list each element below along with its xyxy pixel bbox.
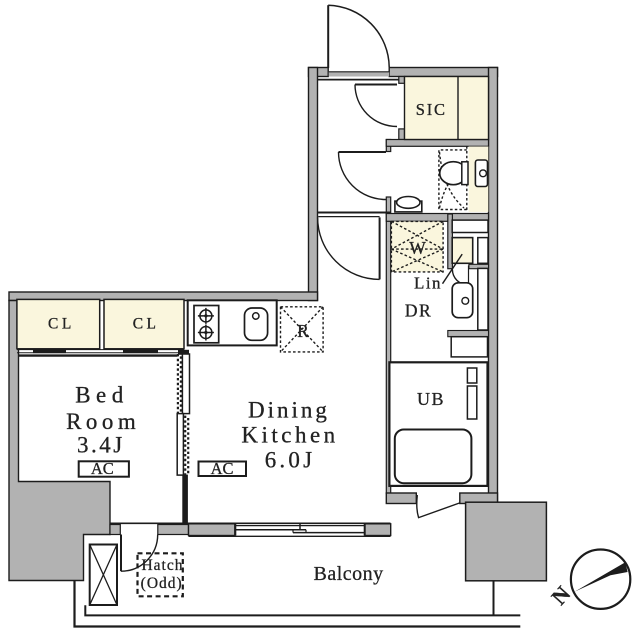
svg-text:CL: CL xyxy=(133,315,160,332)
svg-text:(Odd): (Odd) xyxy=(141,575,183,592)
svg-text:6.0J: 6.0J xyxy=(265,448,316,473)
svg-text:R: R xyxy=(297,321,309,341)
svg-text:SIC: SIC xyxy=(416,100,447,119)
svg-text:UB: UB xyxy=(417,389,445,409)
svg-text:Dining: Dining xyxy=(248,397,330,422)
svg-text:Bed: Bed xyxy=(75,382,129,407)
svg-text:Kitchen: Kitchen xyxy=(241,423,338,448)
svg-text:AC: AC xyxy=(91,459,114,478)
svg-text:CL: CL xyxy=(48,315,75,332)
svg-text:Room: Room xyxy=(66,409,140,434)
svg-text:Lin: Lin xyxy=(414,273,442,292)
svg-text:Balcony: Balcony xyxy=(314,563,384,585)
svg-text:AC: AC xyxy=(211,459,234,478)
svg-text:DR: DR xyxy=(405,300,432,320)
svg-text:W: W xyxy=(409,238,426,258)
svg-text:3.4J: 3.4J xyxy=(77,433,125,458)
svg-text:Hatch: Hatch xyxy=(141,557,183,574)
